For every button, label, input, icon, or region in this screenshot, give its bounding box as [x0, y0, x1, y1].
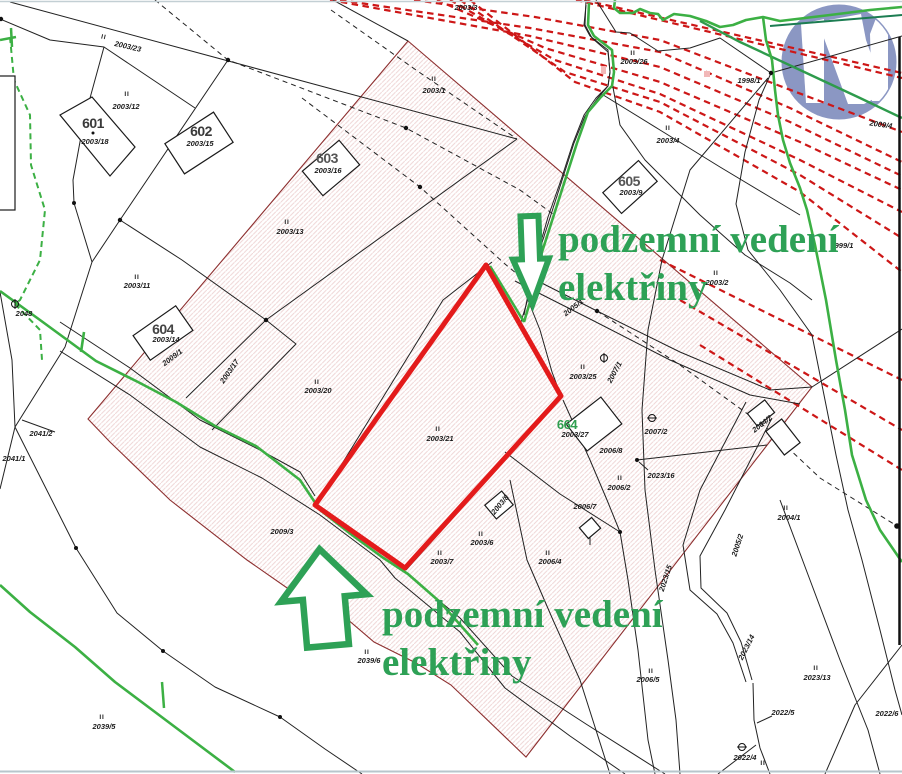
svg-text:2003/13: 2003/13 — [275, 227, 304, 236]
svg-text:602: 602 — [190, 123, 213, 139]
svg-text:2003/21: 2003/21 — [425, 434, 453, 443]
svg-text:II: II — [665, 125, 670, 132]
svg-text:podzemní vedení: podzemní vedení — [382, 593, 664, 636]
svg-text:2022/4: 2022/4 — [733, 753, 758, 762]
svg-text:II: II — [431, 76, 436, 83]
svg-text:2009/3: 2009/3 — [270, 527, 295, 536]
svg-text:2003/26: 2003/26 — [619, 57, 648, 66]
svg-text:2003/12: 2003/12 — [111, 102, 140, 111]
svg-text:II: II — [134, 274, 139, 281]
svg-text:2003/20: 2003/20 — [303, 386, 332, 395]
svg-text:2003/25: 2003/25 — [568, 372, 597, 381]
svg-text:2003/3: 2003/3 — [454, 3, 479, 12]
svg-text:2006/4: 2006/4 — [538, 557, 563, 566]
svg-text:2041/1: 2041/1 — [2, 454, 26, 463]
svg-text:2022/5: 2022/5 — [771, 708, 796, 717]
svg-text:2004/1: 2004/1 — [777, 513, 801, 522]
svg-text:2003/9: 2003/9 — [619, 188, 644, 197]
svg-text:2006/8: 2006/8 — [599, 446, 624, 455]
svg-text:II: II — [478, 531, 483, 538]
svg-text:2048: 2048 — [15, 309, 34, 318]
svg-text:2003/16: 2003/16 — [313, 166, 342, 175]
svg-text:II: II — [364, 649, 369, 656]
svg-text:II: II — [284, 219, 289, 226]
svg-text:II: II — [435, 426, 440, 433]
svg-text:II: II — [783, 505, 788, 512]
svg-text:605: 605 — [618, 173, 641, 189]
svg-text:2003/11: 2003/11 — [123, 281, 151, 290]
svg-text:2007/2: 2007/2 — [644, 427, 669, 436]
svg-text:603: 603 — [316, 150, 339, 166]
svg-text:podzemní vedení: podzemní vedení — [558, 218, 840, 261]
svg-text:II: II — [437, 550, 442, 557]
svg-text:2039/5: 2039/5 — [92, 722, 117, 731]
svg-text:2006/2: 2006/2 — [607, 483, 632, 492]
svg-text:2003/27: 2003/27 — [560, 430, 589, 439]
svg-text:2023/13: 2023/13 — [802, 673, 831, 682]
svg-text:2003/2: 2003/2 — [705, 278, 730, 287]
svg-text:2003/18: 2003/18 — [80, 137, 109, 146]
svg-text:1998/1: 1998/1 — [738, 76, 761, 85]
svg-text:601: 601 — [82, 115, 105, 131]
svg-text:elektřiny: elektřiny — [382, 641, 532, 684]
svg-text:2006/5: 2006/5 — [636, 675, 661, 684]
svg-text:2022/6: 2022/6 — [875, 709, 900, 718]
svg-text:II: II — [813, 665, 818, 672]
svg-text:2003/6: 2003/6 — [470, 538, 495, 547]
svg-text:II: II — [648, 668, 653, 675]
svg-text:2003/4: 2003/4 — [656, 136, 681, 145]
svg-text:2003/7: 2003/7 — [430, 557, 455, 566]
svg-text:II: II — [630, 50, 635, 57]
svg-text:2041/2: 2041/2 — [29, 429, 54, 438]
svg-text:2006/7: 2006/7 — [573, 502, 598, 511]
svg-text:2039/6: 2039/6 — [357, 656, 382, 665]
svg-text:II: II — [545, 550, 550, 557]
svg-text:II: II — [713, 270, 718, 277]
svg-text:II: II — [617, 475, 622, 482]
svg-text:2023/16: 2023/16 — [646, 471, 675, 480]
svg-text:II: II — [314, 379, 319, 386]
svg-text:II: II — [124, 91, 129, 98]
svg-text:II: II — [580, 364, 585, 371]
svg-text:2003/15: 2003/15 — [185, 139, 214, 148]
svg-text:II: II — [760, 760, 765, 767]
svg-text:II: II — [99, 714, 104, 721]
svg-text:2003/1: 2003/1 — [422, 86, 446, 95]
svg-text:elektřiny: elektřiny — [558, 266, 708, 309]
svg-text:2003/14: 2003/14 — [151, 335, 180, 344]
